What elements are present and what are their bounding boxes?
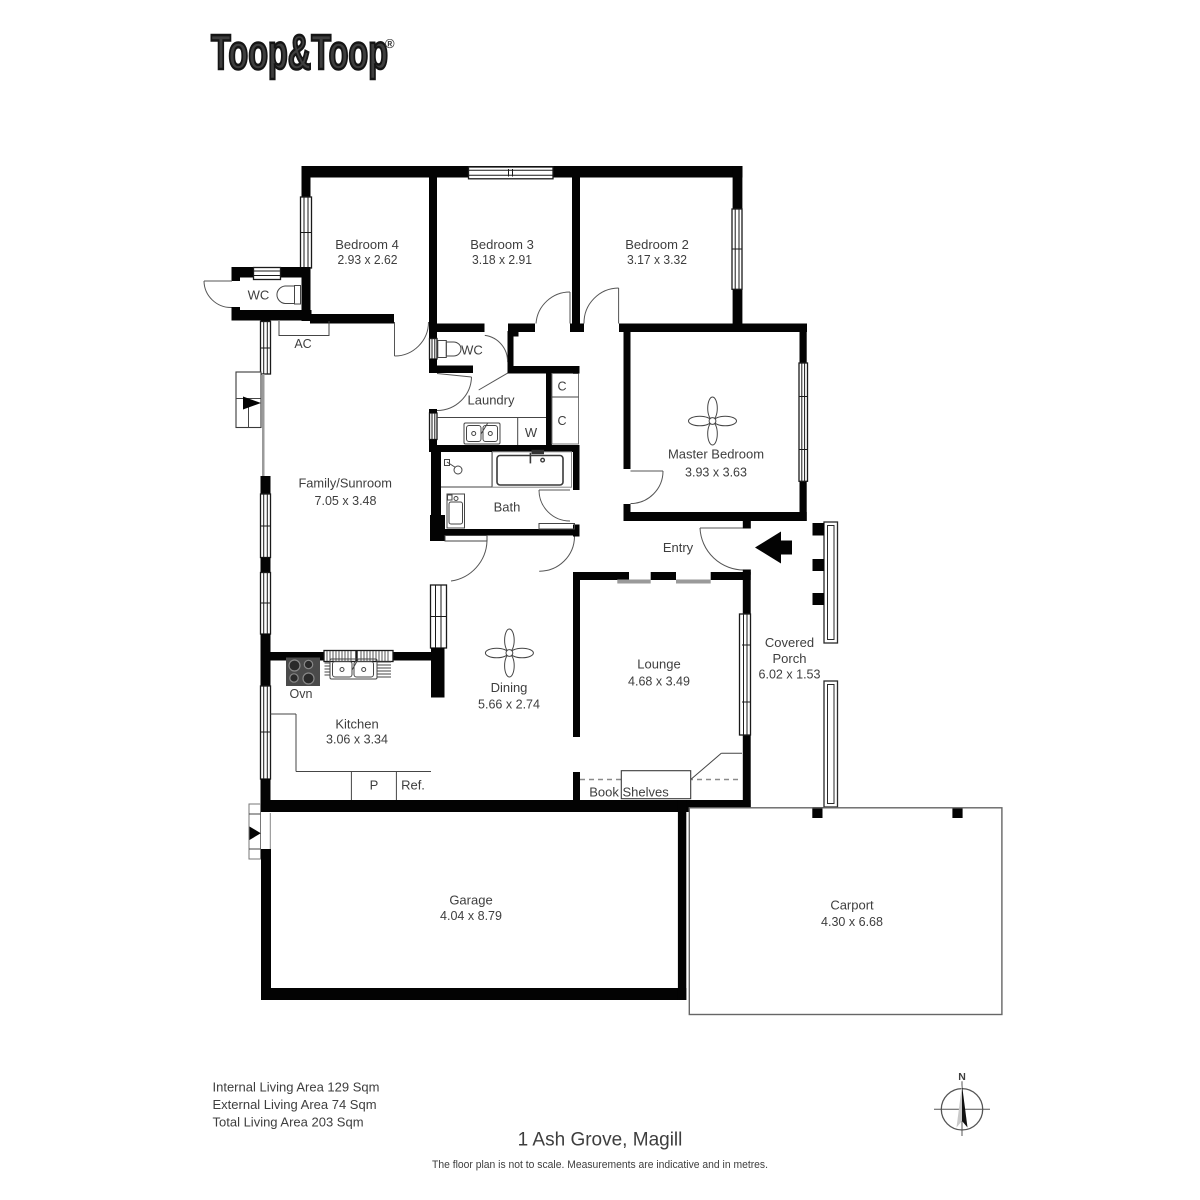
svg-text:Laundry: Laundry — [468, 393, 515, 408]
svg-text:C: C — [557, 380, 566, 394]
svg-text:3.93 x 3.63: 3.93 x 3.63 — [685, 466, 747, 480]
svg-text:4.04 x 8.79: 4.04 x 8.79 — [440, 909, 502, 923]
svg-text:4.68 x 3.49: 4.68 x 3.49 — [628, 675, 690, 689]
svg-text:Kitchen: Kitchen — [335, 717, 378, 732]
svg-text:Master Bedroom: Master Bedroom — [668, 447, 764, 462]
svg-text:AC: AC — [294, 337, 311, 351]
svg-text:Bedroom 3: Bedroom 3 — [470, 237, 534, 252]
svg-text:Internal Living Area 129 Sqm: Internal Living Area 129 Sqm — [213, 1080, 380, 1095]
svg-text:Total Living Area 203 Sqm: Total Living Area 203 Sqm — [213, 1115, 364, 1130]
svg-text:C: C — [557, 414, 566, 428]
svg-text:®: ® — [385, 36, 395, 51]
svg-text:3.18 x 2.91: 3.18 x 2.91 — [472, 253, 532, 267]
svg-text:5.66 x 2.74: 5.66 x 2.74 — [478, 698, 540, 712]
svg-text:Bedroom 2: Bedroom 2 — [625, 237, 689, 252]
svg-text:Lounge: Lounge — [637, 657, 680, 672]
svg-text:Garage: Garage — [449, 893, 492, 908]
svg-text:6.02 x 1.53: 6.02 x 1.53 — [759, 668, 821, 682]
svg-text:Bedroom 4: Bedroom 4 — [335, 237, 399, 252]
svg-text:Ovn: Ovn — [290, 687, 313, 701]
svg-text:Entry: Entry — [663, 540, 694, 555]
svg-text:Bath: Bath — [494, 500, 521, 515]
svg-text:P: P — [370, 778, 379, 793]
svg-text:Ref.: Ref. — [401, 778, 425, 793]
svg-text:Covered: Covered — [765, 635, 814, 650]
svg-text:WC: WC — [248, 288, 270, 303]
svg-text:External Living Area 74 Sqm: External Living Area 74 Sqm — [213, 1097, 377, 1112]
svg-text:Carport: Carport — [830, 898, 874, 913]
svg-text:7.05 x 3.48: 7.05 x 3.48 — [315, 494, 377, 508]
svg-text:N: N — [958, 1071, 966, 1083]
svg-text:2.93 x 2.62: 2.93 x 2.62 — [338, 253, 398, 267]
svg-text:4.30 x 6.68: 4.30 x 6.68 — [821, 915, 883, 929]
svg-text:Toop&Toop: Toop&Toop — [211, 26, 388, 80]
svg-text:1 Ash Grove, Magill: 1 Ash Grove, Magill — [518, 1130, 683, 1151]
svg-text:W: W — [525, 425, 538, 440]
svg-text:The floor plan is not to scale: The floor plan is not to scale. Measurem… — [432, 1159, 768, 1171]
svg-text:WC: WC — [461, 343, 483, 358]
svg-text:Family/Sunroom: Family/Sunroom — [298, 476, 392, 491]
svg-text:3.06 x 3.34: 3.06 x 3.34 — [326, 733, 388, 747]
svg-text:3.17 x 3.32: 3.17 x 3.32 — [627, 253, 687, 267]
svg-text:Dining: Dining — [491, 680, 528, 695]
svg-text:Porch: Porch — [773, 651, 807, 666]
svg-text:Book Shelves: Book Shelves — [589, 785, 669, 800]
